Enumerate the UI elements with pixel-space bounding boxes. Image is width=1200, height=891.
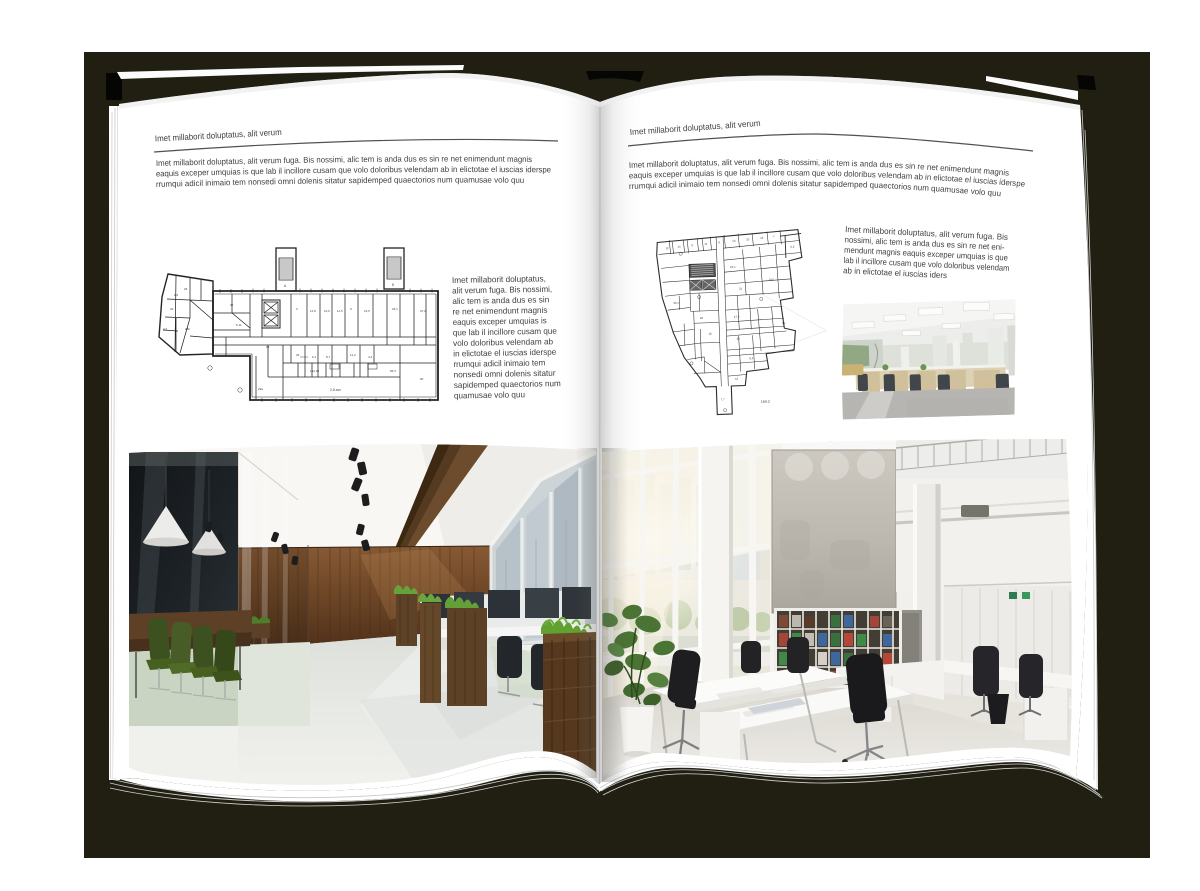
svg-text:32: 32 xyxy=(230,303,234,307)
svg-text:12: 12 xyxy=(735,377,739,381)
svg-text:11,2: 11,2 xyxy=(350,353,356,357)
svg-text:29: 29 xyxy=(737,337,741,341)
svg-text:13: 13 xyxy=(732,239,736,243)
svg-text:6,2: 6,2 xyxy=(790,245,794,249)
svg-text:37,2: 37,2 xyxy=(420,309,426,313)
svg-text:11,8: 11,8 xyxy=(310,309,316,313)
svg-text:14: 14 xyxy=(677,245,681,249)
svg-text:26: 26 xyxy=(184,287,188,291)
svg-text:2-й зал: 2-й зал xyxy=(330,388,341,392)
svg-text:28b: 28b xyxy=(185,327,190,331)
svg-text:19,6: 19,6 xyxy=(769,277,775,281)
svg-text:4,4: 4,4 xyxy=(368,355,373,359)
svg-text:10,6: 10,6 xyxy=(324,309,330,313)
svg-text:16,5: 16,5 xyxy=(364,309,370,313)
svg-text:4,2: 4,2 xyxy=(163,327,168,331)
svg-text:8,4: 8,4 xyxy=(749,356,753,360)
svg-text:36,4: 36,4 xyxy=(673,301,679,305)
svg-text:2,6: 2,6 xyxy=(174,293,179,297)
svg-text:20: 20 xyxy=(170,307,174,311)
svg-text:15: 15 xyxy=(782,321,786,325)
svg-text:90: 90 xyxy=(420,377,424,381)
svg-text:7,7: 7,7 xyxy=(721,397,725,401)
svg-text:26: 26 xyxy=(296,353,300,357)
svg-text:10: 10 xyxy=(746,237,750,241)
svg-text:12: 12 xyxy=(760,236,764,240)
svg-text:5,11: 5,11 xyxy=(236,323,242,327)
svg-text:24,1: 24,1 xyxy=(730,265,736,269)
svg-text:31: 31 xyxy=(739,287,743,291)
svg-text:sapidemped quaectorios num: sapidemped quaectorios num xyxy=(454,378,561,390)
svg-text:169.2: 169.2 xyxy=(761,400,770,404)
svg-text:29a: 29a xyxy=(258,387,263,391)
svg-text:18: 18 xyxy=(708,332,712,336)
svg-text:11,5: 11,5 xyxy=(337,309,343,313)
svg-text:96,3: 96,3 xyxy=(390,369,396,373)
svg-text:26,1: 26,1 xyxy=(392,307,398,311)
svg-text:6,1: 6,1 xyxy=(312,355,317,359)
svg-text:quamusae volo quu: quamusae volo quu xyxy=(454,389,525,400)
svg-text:22: 22 xyxy=(700,316,704,320)
svg-text:8,7: 8,7 xyxy=(326,355,331,359)
svg-text:28: 28 xyxy=(266,345,270,349)
svg-text:142,92: 142,92 xyxy=(310,369,320,373)
svg-text:27,5: 27,5 xyxy=(734,315,740,319)
svg-text:12: 12 xyxy=(665,246,669,250)
